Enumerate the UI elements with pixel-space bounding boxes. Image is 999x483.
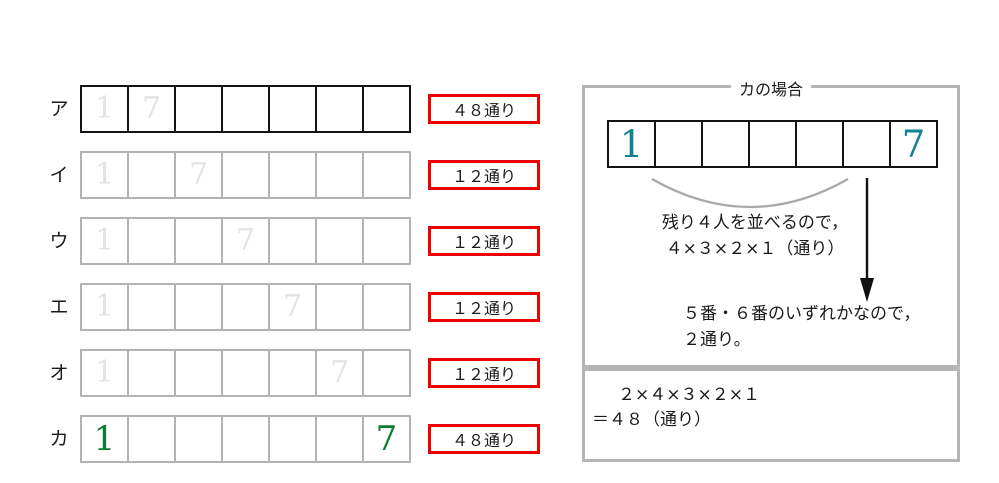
- formula-line: ２×４×３×２×１: [618, 383, 760, 408]
- cell: 1: [80, 151, 129, 199]
- cell: [127, 283, 176, 331]
- cell: 7: [889, 120, 938, 168]
- cell: [221, 283, 270, 331]
- cell: [315, 217, 364, 265]
- cell-digit: 1: [95, 94, 114, 124]
- cell: [127, 217, 176, 265]
- cell-strip: 1 7: [80, 415, 411, 463]
- cell-digit: 7: [376, 422, 398, 456]
- cell: [127, 151, 176, 199]
- cell: 7: [221, 217, 270, 265]
- cell-strip: 1 7: [80, 151, 411, 199]
- cell: [174, 283, 223, 331]
- cell: 1: [80, 415, 129, 463]
- count-badge: ４８通り: [428, 424, 540, 454]
- cell: [221, 415, 270, 463]
- row-label: エ: [44, 283, 74, 331]
- cell-digit: 1: [94, 422, 116, 456]
- cell: [268, 415, 317, 463]
- cell: [362, 283, 411, 331]
- cell-digit: 7: [330, 358, 349, 388]
- cell-digit: 7: [142, 94, 161, 124]
- note-line: 残り４人を並べるので，: [610, 210, 900, 236]
- cell: [315, 151, 364, 199]
- cell-digit: 7: [189, 160, 208, 190]
- cell-strip: 1 7: [80, 283, 411, 331]
- cell: [221, 151, 270, 199]
- cell-digit: 7: [236, 226, 255, 256]
- cell: [268, 85, 317, 133]
- cell-digit: 1: [620, 126, 644, 163]
- cell: [174, 415, 223, 463]
- cell: [795, 120, 844, 168]
- cell-strip: 1 7: [80, 85, 411, 133]
- cell: 1: [80, 217, 129, 265]
- cell: 1: [80, 349, 129, 397]
- row-label: イ: [44, 151, 74, 199]
- row-a: ア 1 7 ４８通り: [0, 85, 560, 133]
- cell: [268, 217, 317, 265]
- cell: 1: [80, 283, 129, 331]
- cell-digit: 7: [902, 126, 926, 163]
- cell: [748, 120, 797, 168]
- cell: 7: [268, 283, 317, 331]
- row-label: ウ: [44, 217, 74, 265]
- row-label: カ: [44, 415, 74, 463]
- cell: [362, 349, 411, 397]
- cell: [362, 151, 411, 199]
- cell-digit: 1: [95, 292, 114, 322]
- cell: 7: [127, 85, 176, 133]
- cell: [701, 120, 750, 168]
- remaining-four-note: 残り４人を並べるので， ４×３×２×１（通り）: [610, 210, 900, 262]
- cell-digit: 1: [95, 358, 114, 388]
- cell: 1: [607, 120, 656, 168]
- row-label: オ: [44, 349, 74, 397]
- cell: [315, 85, 364, 133]
- note-line: ５番・６番のいずれかなので，: [683, 301, 920, 327]
- cell-digit: 1: [95, 160, 114, 190]
- row-e: エ 1 7 １２通り: [0, 283, 560, 331]
- row-u: ウ 1 7 １２通り: [0, 217, 560, 265]
- cell-strip: 1 7: [80, 217, 411, 265]
- cell-digit: 7: [283, 292, 302, 322]
- cell: [221, 349, 270, 397]
- cell: 7: [362, 415, 411, 463]
- formula: ２×４×３×２×１ ＝４８（通り）: [592, 383, 760, 433]
- cell: 7: [174, 151, 223, 199]
- cell: [174, 85, 223, 133]
- brace-arc-icon: [648, 176, 852, 214]
- row-i: イ 1 7 １２通り: [0, 151, 560, 199]
- cell: [127, 415, 176, 463]
- row-o: オ 1 7 １２通り: [0, 349, 560, 397]
- permutation-diagram: ア 1 7 ４８通り イ 1 7 １２通り ウ 1: [0, 0, 999, 483]
- panel-title: カの場合: [731, 76, 811, 100]
- formula-line: ＝４８（通り）: [592, 408, 760, 433]
- count-badge: １２通り: [428, 358, 540, 388]
- note-line: ２通り。: [683, 327, 920, 353]
- cell: [362, 85, 411, 133]
- cell: [127, 349, 176, 397]
- count-badge: １２通り: [428, 160, 540, 190]
- cell-strip: 1 7: [80, 349, 411, 397]
- case-ka-panel: カの場合 1 7 残り４人を並べるので， ４×３×２×１（通り） ５番・６番のい…: [582, 85, 960, 368]
- cell: [654, 120, 703, 168]
- formula-box: ２×４×３×２×１ ＝４８（通り）: [582, 368, 960, 462]
- cell-digit: 1: [95, 226, 114, 256]
- cell-strip: 1 7: [607, 120, 938, 168]
- cell: [315, 283, 364, 331]
- position-choice-note: ５番・６番のいずれかなので， ２通り。: [683, 301, 920, 353]
- cell: [268, 349, 317, 397]
- cell: 7: [315, 349, 364, 397]
- cell: [221, 85, 270, 133]
- row-ka: カ 1 7 ４８通り: [0, 415, 560, 463]
- count-badge: １２通り: [428, 226, 540, 256]
- count-badge: ４８通り: [428, 94, 540, 124]
- cell: [268, 151, 317, 199]
- note-line: ４×３×２×１（通り）: [610, 236, 900, 262]
- cell: [842, 120, 891, 168]
- cell: [174, 217, 223, 265]
- cell: 1: [80, 85, 129, 133]
- count-badge: １２通り: [428, 292, 540, 322]
- cell: [362, 217, 411, 265]
- cell: [174, 349, 223, 397]
- cell: [315, 415, 364, 463]
- row-label: ア: [44, 85, 74, 133]
